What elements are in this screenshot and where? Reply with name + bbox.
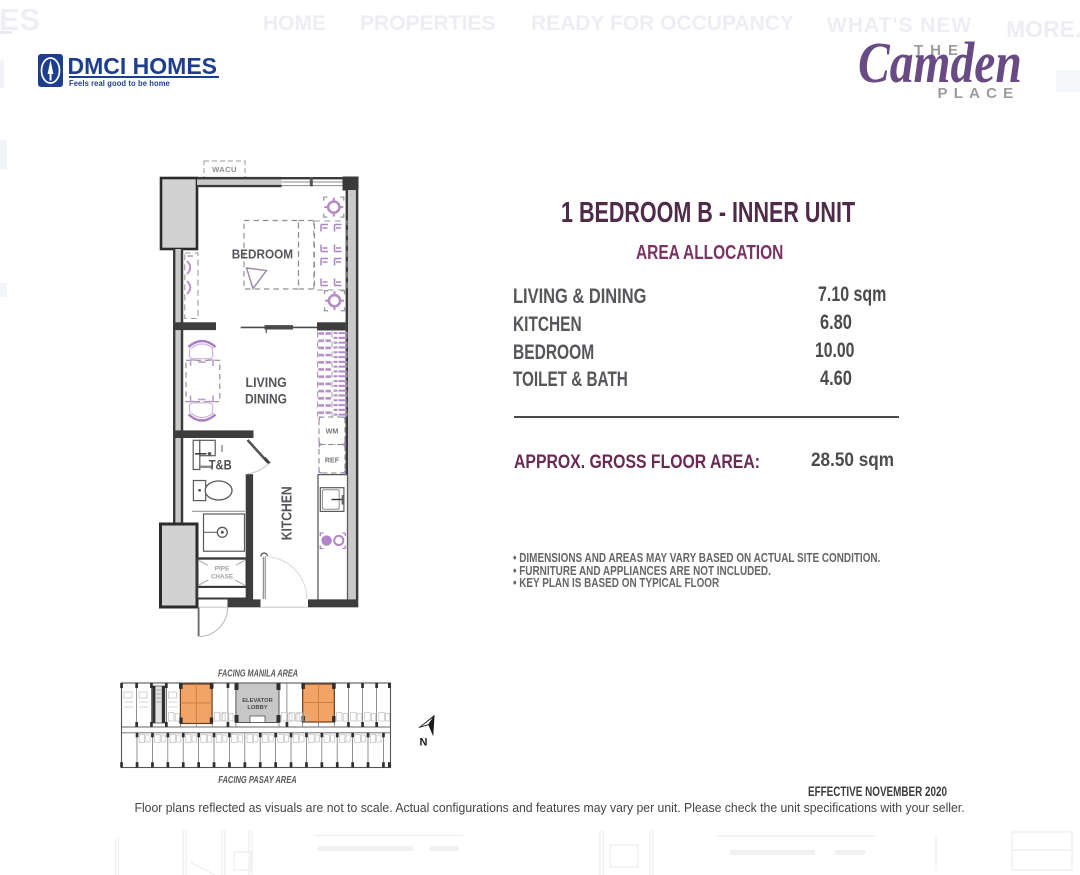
- svg-text:FACING PASAY AREA: FACING PASAY AREA: [218, 774, 296, 786]
- svg-text:CHASE: CHASE: [211, 573, 234, 580]
- svg-text:DINING: DINING: [245, 392, 287, 407]
- svg-text:FACING MANILA AREA: FACING MANILA AREA: [218, 668, 298, 680]
- svg-text:N: N: [420, 737, 428, 749]
- svg-text:WM: WM: [326, 427, 339, 436]
- svg-text:ELEVATOR: ELEVATOR: [242, 698, 273, 704]
- svg-text:T&B: T&B: [209, 458, 232, 473]
- svg-text:KITCHEN: KITCHEN: [279, 486, 296, 540]
- svg-text:LOBBY: LOBBY: [247, 705, 267, 711]
- svg-text:REF: REF: [325, 456, 340, 465]
- svg-text:LIVING: LIVING: [246, 375, 287, 390]
- svg-text:WACU: WACU: [212, 165, 237, 174]
- svg-text:BEDROOM: BEDROOM: [232, 247, 293, 262]
- svg-text:PIPE: PIPE: [215, 566, 230, 573]
